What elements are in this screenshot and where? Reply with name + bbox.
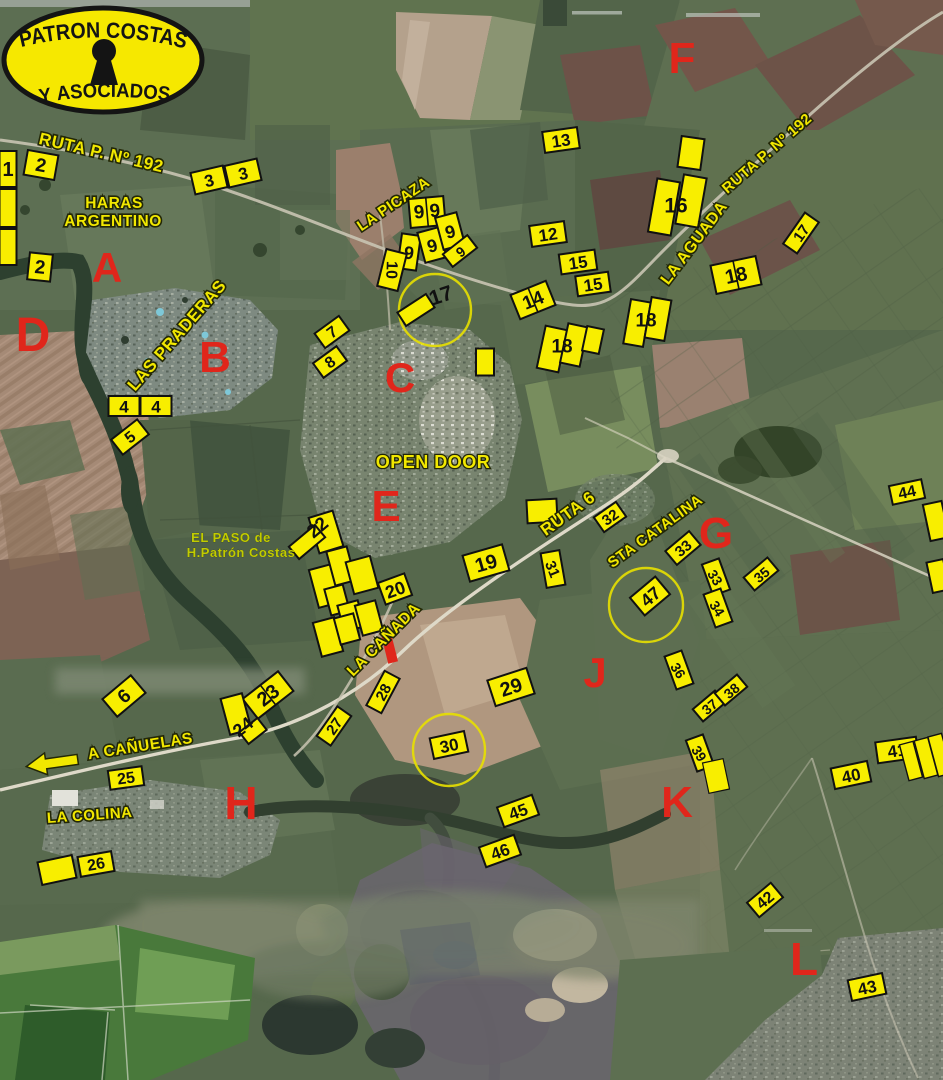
svg-text:18: 18: [551, 337, 572, 358]
svg-text:ARGENTINO: ARGENTINO: [64, 213, 162, 230]
svg-text:OPEN DOOR: OPEN DOOR: [376, 452, 491, 472]
svg-text:L: L: [790, 933, 818, 985]
svg-text:H.Patrón Costas: H.Patrón Costas: [187, 545, 296, 560]
svg-text:4: 4: [119, 398, 129, 417]
svg-text:44: 44: [897, 483, 918, 503]
svg-text:E: E: [371, 482, 400, 531]
svg-text:43: 43: [856, 977, 878, 1000]
svg-text:25: 25: [116, 769, 136, 788]
svg-text:15: 15: [582, 274, 603, 295]
svg-text:13: 13: [550, 130, 571, 151]
svg-text:15: 15: [567, 252, 588, 273]
svg-text:G: G: [699, 509, 733, 558]
svg-text:D: D: [16, 309, 51, 362]
svg-text:18: 18: [635, 311, 656, 332]
svg-text:K: K: [661, 778, 693, 827]
svg-text:H: H: [224, 777, 257, 829]
svg-text:12: 12: [537, 224, 558, 245]
svg-text:A: A: [92, 244, 122, 291]
svg-text:2: 2: [34, 257, 47, 279]
svg-text:40: 40: [840, 765, 862, 788]
svg-text:F: F: [669, 34, 696, 83]
svg-text:16: 16: [664, 195, 687, 218]
svg-text:C: C: [385, 354, 415, 401]
svg-text:HARAS: HARAS: [85, 195, 143, 212]
svg-text:4: 4: [151, 398, 161, 417]
svg-text:1: 1: [2, 159, 13, 181]
svg-text:J: J: [583, 649, 606, 696]
svg-text:18: 18: [723, 263, 749, 289]
svg-text:EL PASO de: EL PASO de: [191, 530, 271, 545]
svg-text:30: 30: [438, 735, 460, 758]
svg-text:26: 26: [86, 855, 107, 875]
svg-text:10: 10: [382, 261, 400, 279]
svg-text:B: B: [199, 333, 231, 382]
